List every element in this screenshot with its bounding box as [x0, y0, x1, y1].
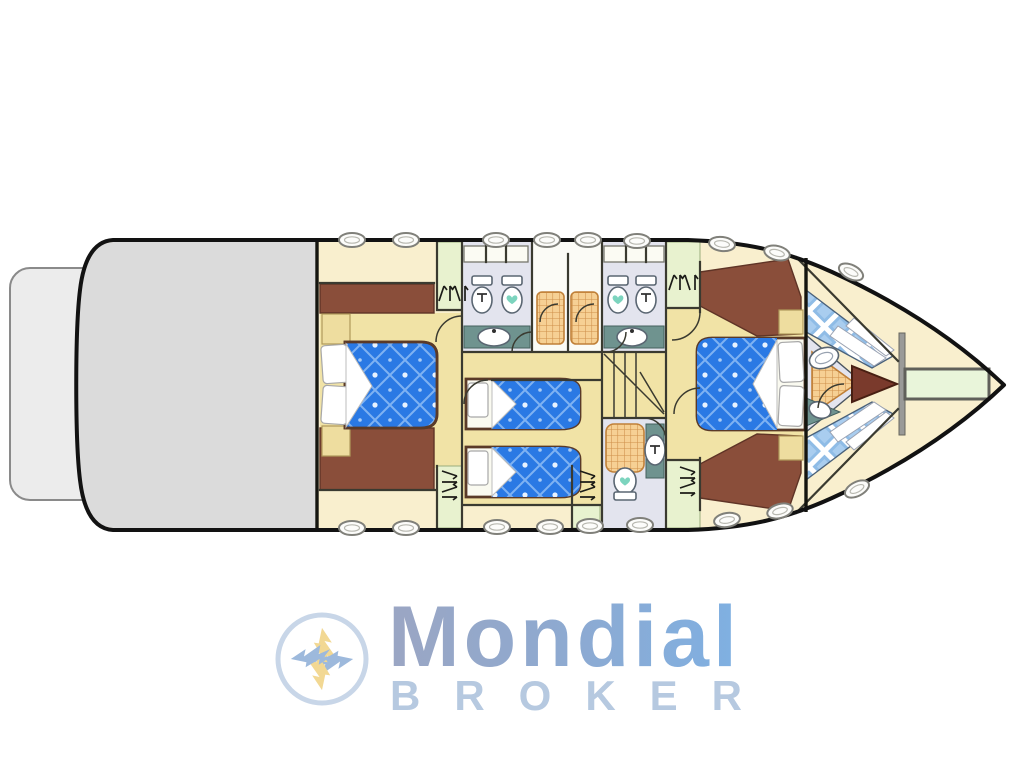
bidet	[472, 276, 492, 313]
cleat-icon	[393, 233, 419, 247]
sink-faucet	[492, 329, 496, 333]
nightstand	[322, 314, 350, 344]
cleat-icon	[537, 520, 563, 534]
toilet	[608, 276, 628, 313]
pillow	[321, 344, 350, 384]
master-floor2	[434, 428, 462, 468]
logo-brand-text: Mondial	[388, 589, 741, 685]
day-head	[602, 418, 666, 528]
nightstand	[322, 426, 350, 456]
corridor-fwd	[666, 308, 700, 460]
shower-stall	[606, 424, 644, 472]
guest-bathroom-starboard	[602, 242, 666, 352]
pillow	[468, 451, 488, 485]
single-bed-1	[466, 379, 580, 429]
pillow	[778, 341, 804, 382]
logo-subbrand-text: BROKER	[390, 672, 776, 719]
sink-faucet	[630, 329, 634, 333]
cleat-icon	[484, 520, 510, 534]
cleat-icon	[393, 521, 419, 535]
yacht-floorplan-canvas: Mondial BROKER	[0, 0, 1024, 768]
cleat-icon	[575, 233, 601, 247]
vip-cabin	[697, 259, 805, 511]
cleat-icon	[339, 521, 365, 535]
bidet	[636, 276, 656, 313]
cleat-icon	[339, 233, 365, 247]
toilet	[614, 468, 636, 500]
pillow	[778, 385, 804, 426]
anchor-locker-box	[905, 369, 989, 399]
single-bed-2	[466, 447, 580, 497]
cleat-icon	[624, 234, 650, 248]
cleat-icon	[534, 233, 560, 247]
mondial-broker-logo: Mondial BROKER	[278, 589, 776, 719]
boat-plan	[10, 233, 1004, 535]
master-cabin	[320, 284, 466, 490]
twin-cabin	[462, 379, 602, 505]
master-dresser-top	[320, 284, 434, 313]
vip-double-bed	[697, 338, 805, 430]
nightstand	[779, 310, 803, 334]
cleat-icon	[627, 518, 653, 532]
pillow	[321, 385, 350, 425]
cleat-icon	[577, 519, 603, 533]
cleat-icon	[483, 233, 509, 247]
floorplan-svg: Mondial BROKER	[0, 0, 1024, 768]
aft-deck	[76, 242, 317, 528]
shower-stall	[571, 292, 598, 344]
companionway-stairs	[602, 352, 666, 418]
toilet	[502, 276, 522, 313]
bath-cabinet	[464, 246, 528, 262]
corridor	[462, 353, 602, 380]
nightstand	[779, 436, 803, 460]
logo-emblem	[278, 615, 366, 703]
